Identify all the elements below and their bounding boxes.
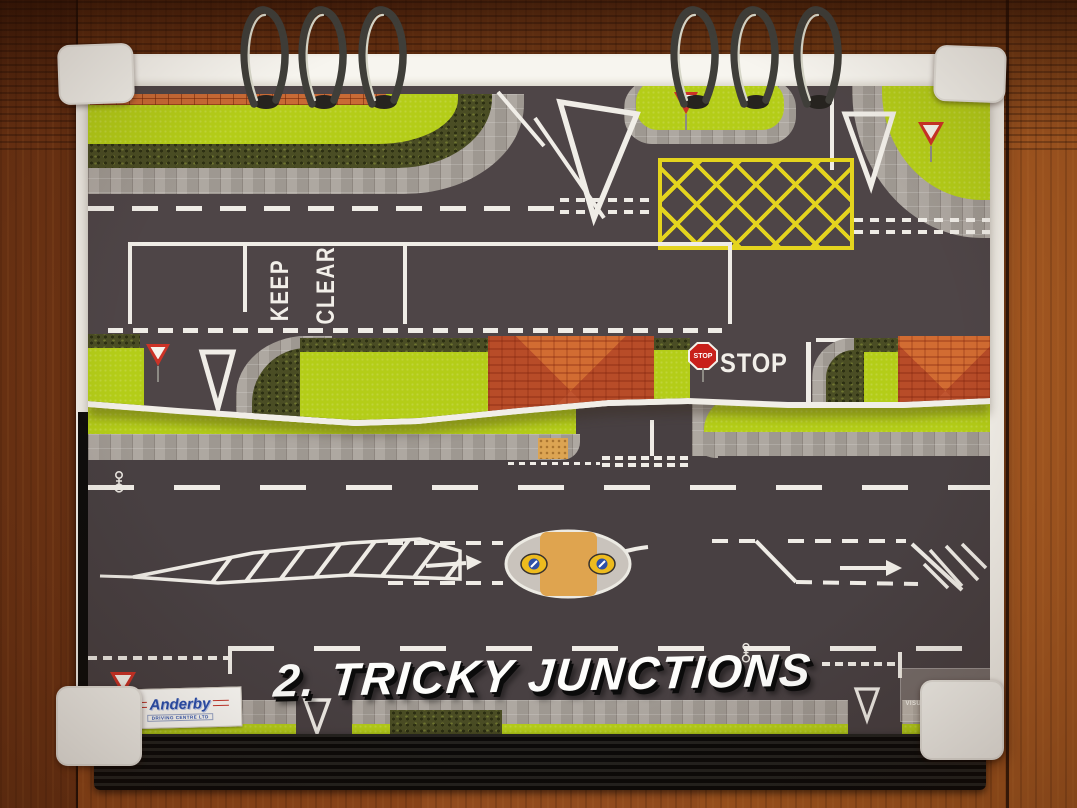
- clear-marking: CLEAR: [312, 256, 340, 325]
- binder-ring: [362, 10, 403, 104]
- grass-verge: [300, 352, 492, 430]
- binder-ring: [302, 10, 343, 104]
- sign-post: [157, 366, 159, 382]
- keep-clear-bay-line: [128, 242, 132, 324]
- give-way-dashes: [854, 218, 990, 222]
- anderby-logo-subtitle: DRIVING CENTRE LTD: [148, 713, 213, 722]
- stop-line-marking: [806, 342, 811, 430]
- yellow-box-junction: [658, 158, 854, 250]
- central-road-markings: [88, 520, 990, 632]
- binder-ring: [797, 10, 838, 104]
- stop-sign-icon: STOP: [688, 342, 718, 370]
- give-way-dashes: [560, 210, 656, 214]
- keep-clear-bay-line: [243, 242, 247, 312]
- give-way-dashes: [560, 198, 656, 202]
- printed-road-map: Anderby DRIVING CENTRE LTD V A VISUAL IN…: [86, 60, 992, 748]
- give-way-dashes: [108, 328, 722, 333]
- photo-of-flipbook-on-table: Anderby DRIVING CENTRE LTD V A VISUAL IN…: [0, 0, 1077, 808]
- binder-rings: [0, 0, 1077, 140]
- pedestrian-refuge-island: [506, 531, 630, 597]
- centre-line: [88, 206, 560, 211]
- page-stack-edge: [94, 734, 986, 790]
- corner-protector: [56, 686, 142, 766]
- stop-sign-text: STOP: [690, 344, 716, 368]
- keep-clear-bay-line: [728, 242, 732, 324]
- straight-arrow-head: [466, 555, 482, 570]
- keep-clear-bay-line: [403, 242, 407, 324]
- grass-verge: [88, 348, 144, 430]
- hedge: [826, 350, 864, 430]
- corner-protector: [920, 680, 1004, 760]
- give-way-dashes: [854, 230, 990, 234]
- stop-road-marking: STOP: [720, 348, 788, 379]
- lane-line: [88, 485, 990, 490]
- binder-ring: [674, 10, 715, 104]
- give-way-sign-icon: [146, 344, 170, 366]
- keep-clear-bay-line: [128, 242, 730, 246]
- sign-post: [702, 368, 704, 382]
- building-roof: [488, 336, 654, 430]
- binder-ring: [734, 10, 775, 104]
- building-roof: [898, 336, 990, 430]
- turn-arrow-head: [886, 560, 902, 576]
- binder-ring: [244, 10, 285, 104]
- grass-verge: [654, 350, 690, 430]
- keep-marking: KEEP: [266, 257, 294, 323]
- grass-verge: [864, 352, 898, 430]
